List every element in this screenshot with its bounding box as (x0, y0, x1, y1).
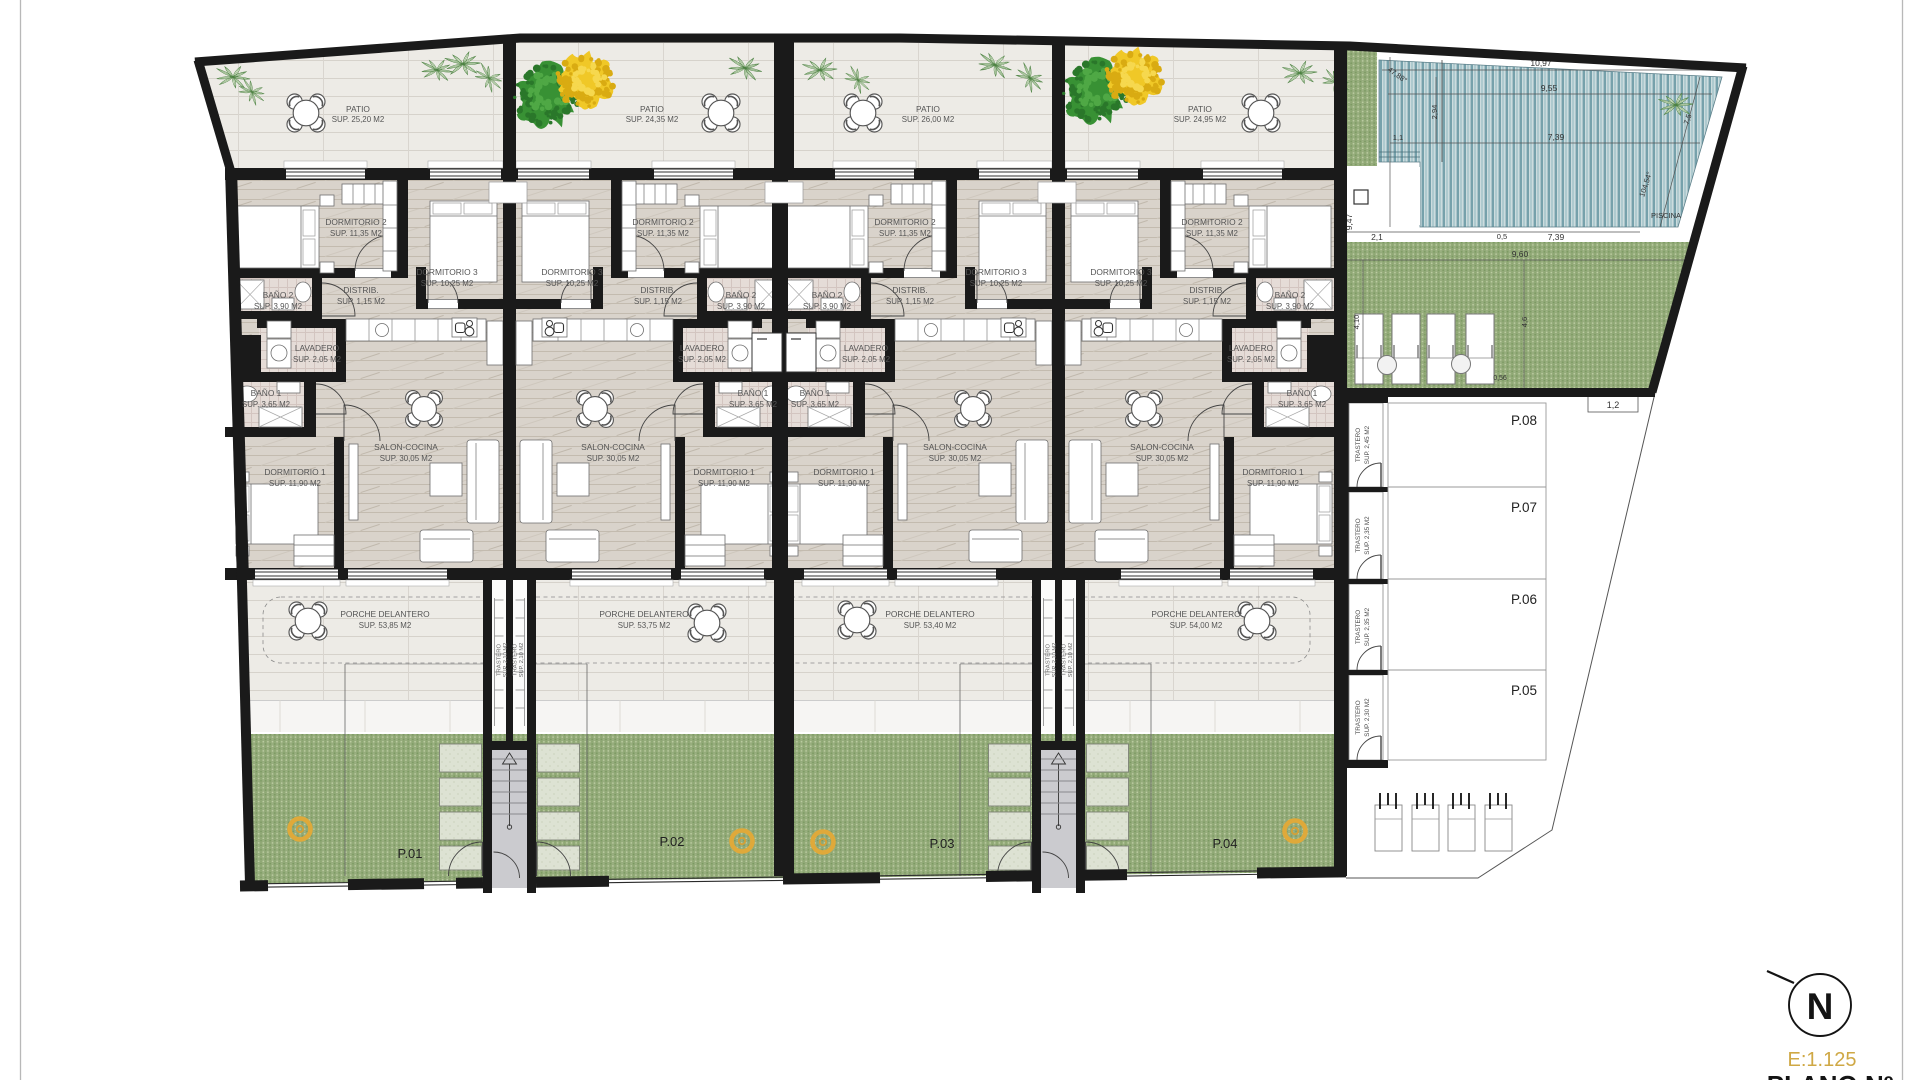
svg-text:SUP. 3,65 M2: SUP. 3,65 M2 (791, 400, 839, 409)
svg-text:SALON-COCINA: SALON-COCINA (1130, 442, 1194, 452)
svg-text:DORMITORIO 2: DORMITORIO 2 (1181, 217, 1243, 227)
svg-text:PLANO Nº: PLANO Nº (1767, 1070, 1894, 1080)
svg-text:SUP. 2,05 M2: SUP. 2,05 M2 (293, 355, 341, 364)
svg-text:DORMITORIO 3: DORMITORIO 3 (541, 267, 603, 277)
svg-text:SUP. 10,25 M2: SUP. 10,25 M2 (1095, 279, 1148, 288)
svg-text:BAÑO 1: BAÑO 1 (1287, 388, 1318, 398)
svg-text:SUP. 3,90 M2: SUP. 3,90 M2 (254, 302, 302, 311)
svg-text:SUP. 1,15 M2: SUP. 1,15 M2 (886, 297, 934, 306)
svg-text:SUP. 1,15 M2: SUP. 1,15 M2 (1183, 297, 1231, 306)
svg-text:SUP. 2,35 M2: SUP. 2,35 M2 (1364, 607, 1371, 646)
svg-text:SUP. 11,90 M2: SUP. 11,90 M2 (698, 479, 750, 488)
svg-text:SUP. 11,90 M2: SUP. 11,90 M2 (818, 479, 870, 488)
svg-text:SUP. 53,40 M2: SUP. 53,40 M2 (904, 621, 957, 630)
svg-text:PORCHE DELANTERO: PORCHE DELANTERO (885, 609, 975, 619)
svg-text:SUP. 2,10 M2: SUP. 2,10 M2 (503, 643, 509, 678)
svg-text:SUP. 11,35 M2: SUP. 11,35 M2 (879, 229, 931, 238)
svg-text:LAVADERO: LAVADERO (295, 343, 340, 353)
svg-text:SUP. 30,05 M2: SUP. 30,05 M2 (1136, 454, 1189, 463)
svg-text:DORMITORIO 1: DORMITORIO 1 (693, 467, 755, 477)
svg-text:PORCHE DELANTERO: PORCHE DELANTERO (1151, 609, 1241, 619)
svg-text:SUP. 2,10 M2: SUP. 2,10 M2 (1052, 643, 1058, 678)
svg-text:SUP. 30,05 M2: SUP. 30,05 M2 (587, 454, 640, 463)
svg-text:DORMITORIO 3: DORMITORIO 3 (965, 267, 1027, 277)
svg-text:DORMITORIO 1: DORMITORIO 1 (1242, 467, 1304, 477)
svg-text:LAVADERO: LAVADERO (680, 343, 725, 353)
svg-text:TRASTERO: TRASTERO (1355, 700, 1362, 734)
svg-text:SUP. 3,65 M2: SUP. 3,65 M2 (1278, 400, 1326, 409)
svg-text:4,10: 4,10 (1352, 315, 1361, 330)
svg-text:TRASTERO: TRASTERO (1062, 644, 1068, 676)
svg-text:SUP. 11,35 M2: SUP. 11,35 M2 (637, 229, 689, 238)
svg-text:SUP. 3,90 M2: SUP. 3,90 M2 (803, 302, 851, 311)
svg-text:PATIO: PATIO (346, 104, 370, 114)
svg-text:BAÑO 1: BAÑO 1 (800, 388, 831, 398)
svg-text:SUP. 2,05 M2: SUP. 2,05 M2 (678, 355, 726, 364)
svg-text:SUP. 53,85 M2: SUP. 53,85 M2 (359, 621, 412, 630)
svg-text:PISCINA: PISCINA (1651, 211, 1681, 220)
svg-text:SUP. 53,75 M2: SUP. 53,75 M2 (618, 621, 671, 630)
svg-text:BAÑO 2: BAÑO 2 (1275, 290, 1306, 300)
svg-text:SUP. 24,35 M2: SUP. 24,35 M2 (626, 115, 679, 124)
svg-text:SUP. 2,05 M2: SUP. 2,05 M2 (1227, 355, 1275, 364)
svg-text:SUP. 10,25 M2: SUP. 10,25 M2 (421, 279, 474, 288)
svg-text:BAÑO 2: BAÑO 2 (812, 290, 843, 300)
svg-text:SUP. 3,90 M2: SUP. 3,90 M2 (717, 302, 765, 311)
svg-text:LAVADERO: LAVADERO (844, 343, 889, 353)
svg-text:9,60: 9,60 (1512, 249, 1529, 259)
svg-text:DISTRIB.: DISTRIB. (1189, 285, 1224, 295)
svg-text:TRASTERO: TRASTERO (513, 644, 519, 676)
svg-text:SUP. 26,00 M2: SUP. 26,00 M2 (902, 115, 955, 124)
svg-text:SUP. 30,05 M2: SUP. 30,05 M2 (929, 454, 982, 463)
svg-text:BAÑO 1: BAÑO 1 (738, 388, 769, 398)
svg-text:SUP. 54,00 M2: SUP. 54,00 M2 (1170, 621, 1223, 630)
svg-text:P.05: P.05 (1511, 683, 1537, 698)
svg-text:0,5: 0,5 (1497, 232, 1507, 241)
svg-text:SUP. 24,95 M2: SUP. 24,95 M2 (1174, 115, 1227, 124)
svg-text:P.08: P.08 (1511, 413, 1537, 428)
svg-text:7,39: 7,39 (1548, 232, 1565, 242)
svg-text:SUP. 11,90 M2: SUP. 11,90 M2 (269, 479, 321, 488)
svg-text:P.06: P.06 (1511, 592, 1537, 607)
svg-text:PATIO: PATIO (1188, 104, 1212, 114)
svg-text:PATIO: PATIO (640, 104, 664, 114)
svg-text:DISTRIB.: DISTRIB. (640, 285, 675, 295)
svg-text:1,1: 1,1 (1393, 133, 1403, 142)
svg-text:TRASTERO: TRASTERO (1355, 518, 1362, 552)
svg-text:DORMITORIO 2: DORMITORIO 2 (325, 217, 387, 227)
svg-text:SUP. 2,30 M2: SUP. 2,30 M2 (1364, 698, 1371, 737)
svg-text:DORMITORIO 3: DORMITORIO 3 (1090, 267, 1152, 277)
svg-text:SALON-COCINA: SALON-COCINA (374, 442, 438, 452)
svg-text:BAÑO 1: BAÑO 1 (251, 388, 282, 398)
svg-text:7,39: 7,39 (1548, 132, 1565, 142)
svg-text:BAÑO 2: BAÑO 2 (726, 290, 757, 300)
svg-text:2,94: 2,94 (1430, 105, 1439, 120)
svg-text:DORMITORIO 3: DORMITORIO 3 (416, 267, 478, 277)
svg-text:SUP. 10,25 M2: SUP. 10,25 M2 (970, 279, 1023, 288)
svg-text:PORCHE DELANTERO: PORCHE DELANTERO (599, 609, 689, 619)
svg-text:E:1.125: E:1.125 (1788, 1049, 1857, 1071)
svg-text:4,6: 4,6 (1520, 317, 1529, 327)
svg-text:PATIO: PATIO (916, 104, 940, 114)
svg-text:9,55: 9,55 (1541, 83, 1558, 93)
svg-text:TRASTERO: TRASTERO (497, 644, 503, 676)
svg-text:SUP. 2,10 M2: SUP. 2,10 M2 (519, 643, 525, 678)
svg-text:SUP. 2,35 M2: SUP. 2,35 M2 (1364, 516, 1371, 555)
svg-text:SUP. 30,05 M2: SUP. 30,05 M2 (380, 454, 433, 463)
svg-text:DORMITORIO 2: DORMITORIO 2 (874, 217, 936, 227)
svg-text:TRASTERO: TRASTERO (1355, 428, 1362, 462)
svg-text:SUP. 11,35 M2: SUP. 11,35 M2 (330, 229, 382, 238)
svg-text:P.01: P.01 (397, 846, 422, 861)
svg-text:TRASTERO: TRASTERO (1046, 644, 1052, 676)
svg-text:SUP. 3,90 M2: SUP. 3,90 M2 (1266, 302, 1314, 311)
svg-text:TRASTERO: TRASTERO (1355, 610, 1362, 644)
svg-text:SUP. 25,20 M2: SUP. 25,20 M2 (332, 115, 385, 124)
svg-text:SUP. 10,25 M2: SUP. 10,25 M2 (546, 279, 599, 288)
svg-text:2,1: 2,1 (1371, 232, 1383, 242)
svg-text:SUP. 1,15 M2: SUP. 1,15 M2 (634, 297, 682, 306)
svg-text:SUP. 11,90 M2: SUP. 11,90 M2 (1247, 479, 1299, 488)
svg-text:DISTRIB.: DISTRIB. (892, 285, 927, 295)
svg-text:N: N (1807, 986, 1834, 1027)
svg-text:P.03: P.03 (929, 836, 954, 851)
svg-text:SUP. 2,05 M2: SUP. 2,05 M2 (842, 355, 890, 364)
svg-text:LAVADERO: LAVADERO (1229, 343, 1274, 353)
svg-text:SALON-COCINA: SALON-COCINA (581, 442, 645, 452)
svg-text:SUP. 2,45 M2: SUP. 2,45 M2 (1364, 425, 1371, 464)
svg-text:SUP. 3,65 M2: SUP. 3,65 M2 (729, 400, 777, 409)
svg-text:P.07: P.07 (1511, 500, 1537, 515)
svg-text:PORCHE DELANTERO: PORCHE DELANTERO (340, 609, 430, 619)
svg-text:DISTRIB.: DISTRIB. (343, 285, 378, 295)
svg-text:P.04: P.04 (1212, 836, 1237, 851)
svg-text:0,56: 0,56 (1493, 375, 1507, 382)
svg-text:DORMITORIO 1: DORMITORIO 1 (264, 467, 326, 477)
svg-text:SUP. 3,65 M2: SUP. 3,65 M2 (242, 400, 290, 409)
svg-text:BAÑO 2: BAÑO 2 (263, 290, 294, 300)
svg-text:1,2: 1,2 (1607, 400, 1620, 410)
svg-text:SALON-COCINA: SALON-COCINA (923, 442, 987, 452)
svg-text:P.02: P.02 (659, 834, 684, 849)
svg-text:SUP. 11,35 M2: SUP. 11,35 M2 (1186, 229, 1238, 238)
svg-text:DORMITORIO 1: DORMITORIO 1 (813, 467, 875, 477)
svg-text:DORMITORIO 2: DORMITORIO 2 (632, 217, 694, 227)
svg-text:SUP. 2,10 M2: SUP. 2,10 M2 (1068, 643, 1074, 678)
svg-text:SUP. 1,15 M2: SUP. 1,15 M2 (337, 297, 385, 306)
